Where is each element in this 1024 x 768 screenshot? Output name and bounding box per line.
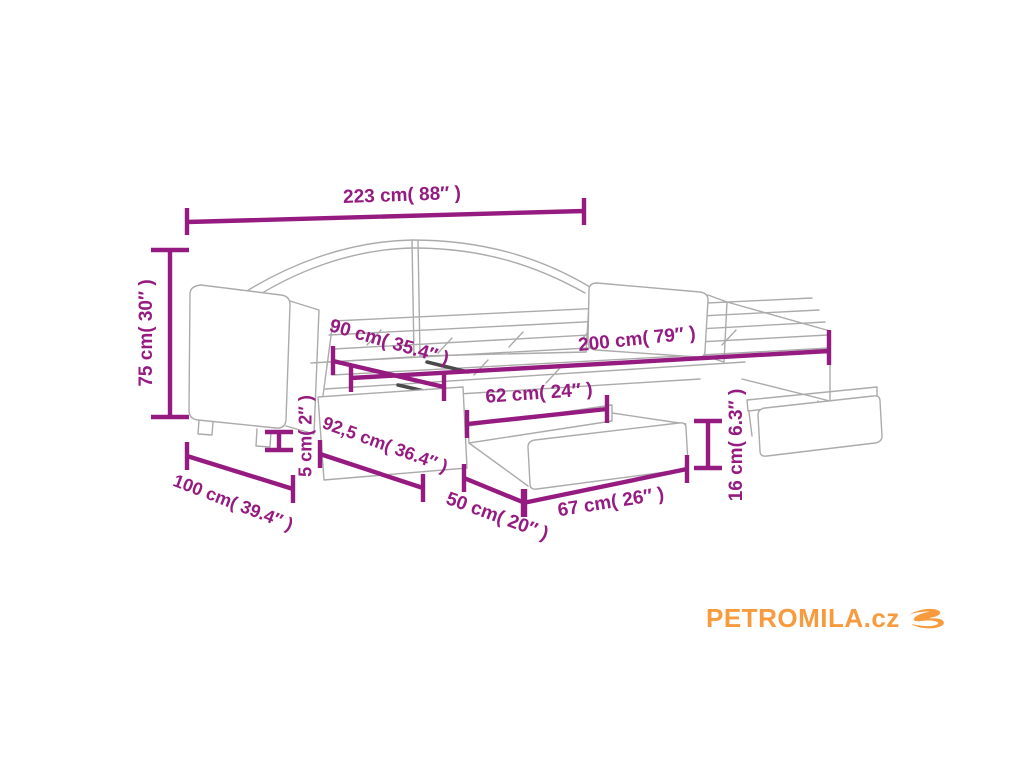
- center-drawer-front: [528, 423, 688, 489]
- dim-label-leg-height: 5 cm( 2″ ): [296, 395, 317, 477]
- left-armrest-leg: [198, 420, 213, 435]
- deck-back-edge: [333, 298, 812, 321]
- logo-text: PETROMILA.cz: [706, 603, 900, 634]
- center-drawer-right-side: [612, 413, 686, 424]
- dim-label-total-height: 75 cm( 30″ ): [136, 279, 158, 386]
- dim-label-drawer-height: 16 cm( 6.3″ ): [726, 389, 748, 502]
- logo-swoosh-icon: [906, 597, 946, 639]
- center-drawer-left-side: [469, 443, 528, 486]
- right-drawer-left-wall: [749, 412, 752, 436]
- dim-label-total-width: 223 cm( 88″ ): [343, 183, 462, 209]
- foot-bottom-edge: [742, 379, 830, 401]
- right-drawer-front: [758, 396, 882, 456]
- dimension-line-drawer-height: [694, 421, 722, 468]
- petromila-logo: PETROMILA.cz: [706, 595, 946, 641]
- left-armrest-front: [189, 285, 290, 428]
- dimension-diagram-page: 223 cm( 88″ ) 75 cm( 30″ ) 90 cm( 35.4″ …: [0, 0, 1024, 768]
